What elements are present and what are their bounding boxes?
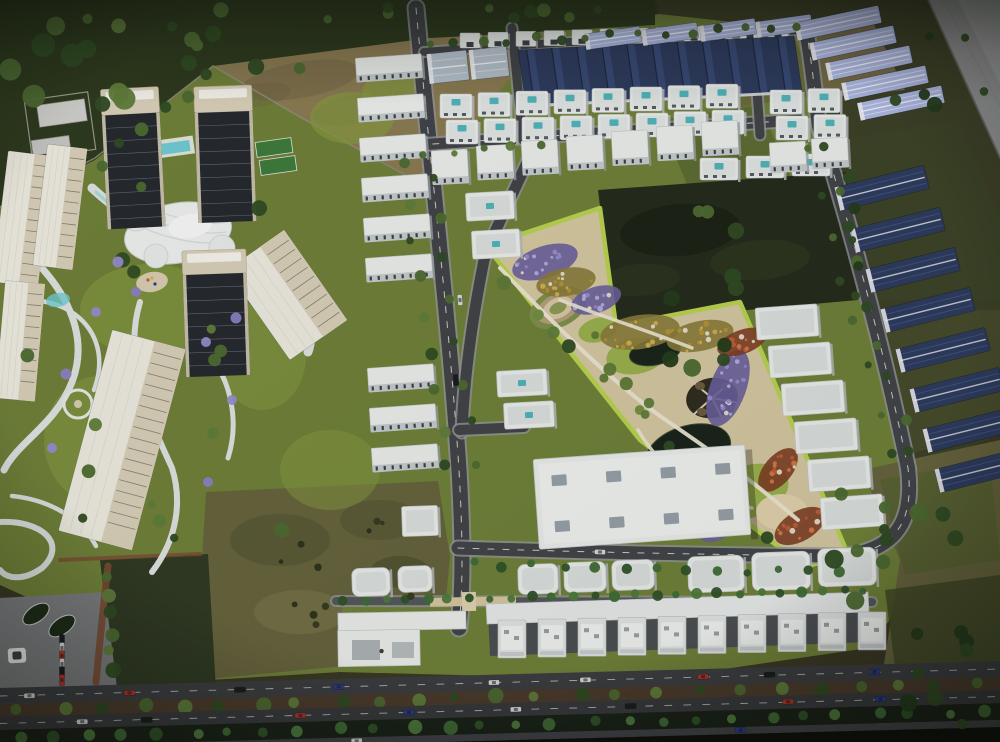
top-shade bbox=[0, 0, 1000, 742]
top-shade bbox=[0, 0, 1000, 742]
masterplan-render bbox=[0, 0, 1000, 742]
aerial-render-canvas bbox=[0, 0, 1000, 742]
scene-layers bbox=[0, 0, 1000, 742]
